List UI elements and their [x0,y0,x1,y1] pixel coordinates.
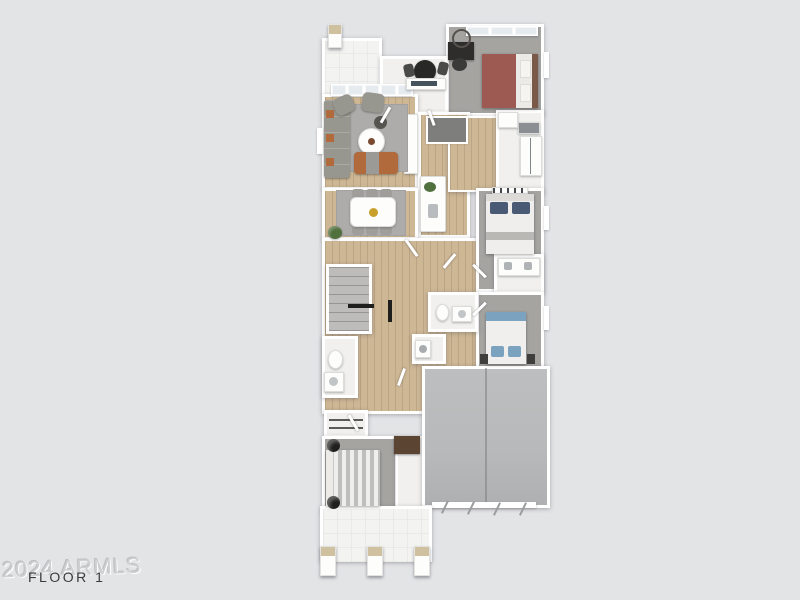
bed-pillow [512,202,530,214]
nightstand [327,496,340,509]
vanity-sink [329,377,338,386]
bed-pillow [520,60,531,78]
bath-vanity [518,122,540,134]
potted-plant [328,226,342,239]
island-sink [428,204,438,218]
sofa-pillow [326,134,334,142]
window-row-guest-bedroom [466,26,538,36]
bed-runner [486,232,534,240]
bedroom2-console [492,187,528,194]
bed-pillow [490,202,508,214]
bed-pillow [491,346,504,357]
room-closet [324,410,368,438]
dining-chair [380,226,392,235]
vanity-sink [504,262,512,270]
closet-shelves [498,112,518,128]
porch-pillar [367,546,383,576]
bed-3 [486,312,526,364]
bed-blanket-red [482,54,516,108]
window-pane [491,27,513,35]
ottoman-throw [366,152,379,174]
washer-door [419,345,427,353]
window-pane [381,85,395,95]
armchair [361,92,385,114]
coffee-table-decor [368,138,375,145]
nightstand [327,439,340,452]
dining-chair [366,226,378,235]
window-sill [317,128,323,154]
bed-guest [482,54,538,108]
wet-bar-sink [411,81,437,86]
window-sill [544,306,549,330]
headboard [532,54,538,108]
porch-pillar [328,24,342,48]
sofa-pillow [326,158,334,166]
bed-2 [486,194,534,254]
dining-chair [352,226,364,235]
bed-pillow [508,346,521,357]
nightstand [527,354,535,364]
closet-rod [329,419,363,421]
desk-chair [452,58,467,71]
window-pane [515,27,537,35]
toilet [328,350,343,369]
toilet [436,304,449,321]
vanity-sink [458,310,466,318]
dresser [394,436,420,454]
window-pane [348,85,362,95]
window-sill [544,52,549,78]
sofa-pillow [326,110,334,118]
centerpiece [369,208,378,217]
vanity-sink [524,262,532,270]
porch-pillar [414,546,430,576]
garage-floor-seam [485,368,487,506]
headboard [486,194,534,201]
nightstand [480,354,488,364]
porch-pillar [320,546,336,576]
floor-plan-scene: 2024 ARMLS FLOOR 1 [0,0,800,600]
island-plant [424,182,436,192]
bathtub [520,136,542,176]
shower-glass [530,138,531,174]
stairs [326,264,372,334]
headboard [486,312,526,321]
bed-pillow [520,84,531,102]
floor-label: FLOOR 1 [28,569,105,585]
window-pane [467,27,489,35]
round-mirror [452,29,471,48]
stair-railing-post [388,300,392,322]
window-sill [544,206,549,230]
stair-railing [348,304,374,308]
